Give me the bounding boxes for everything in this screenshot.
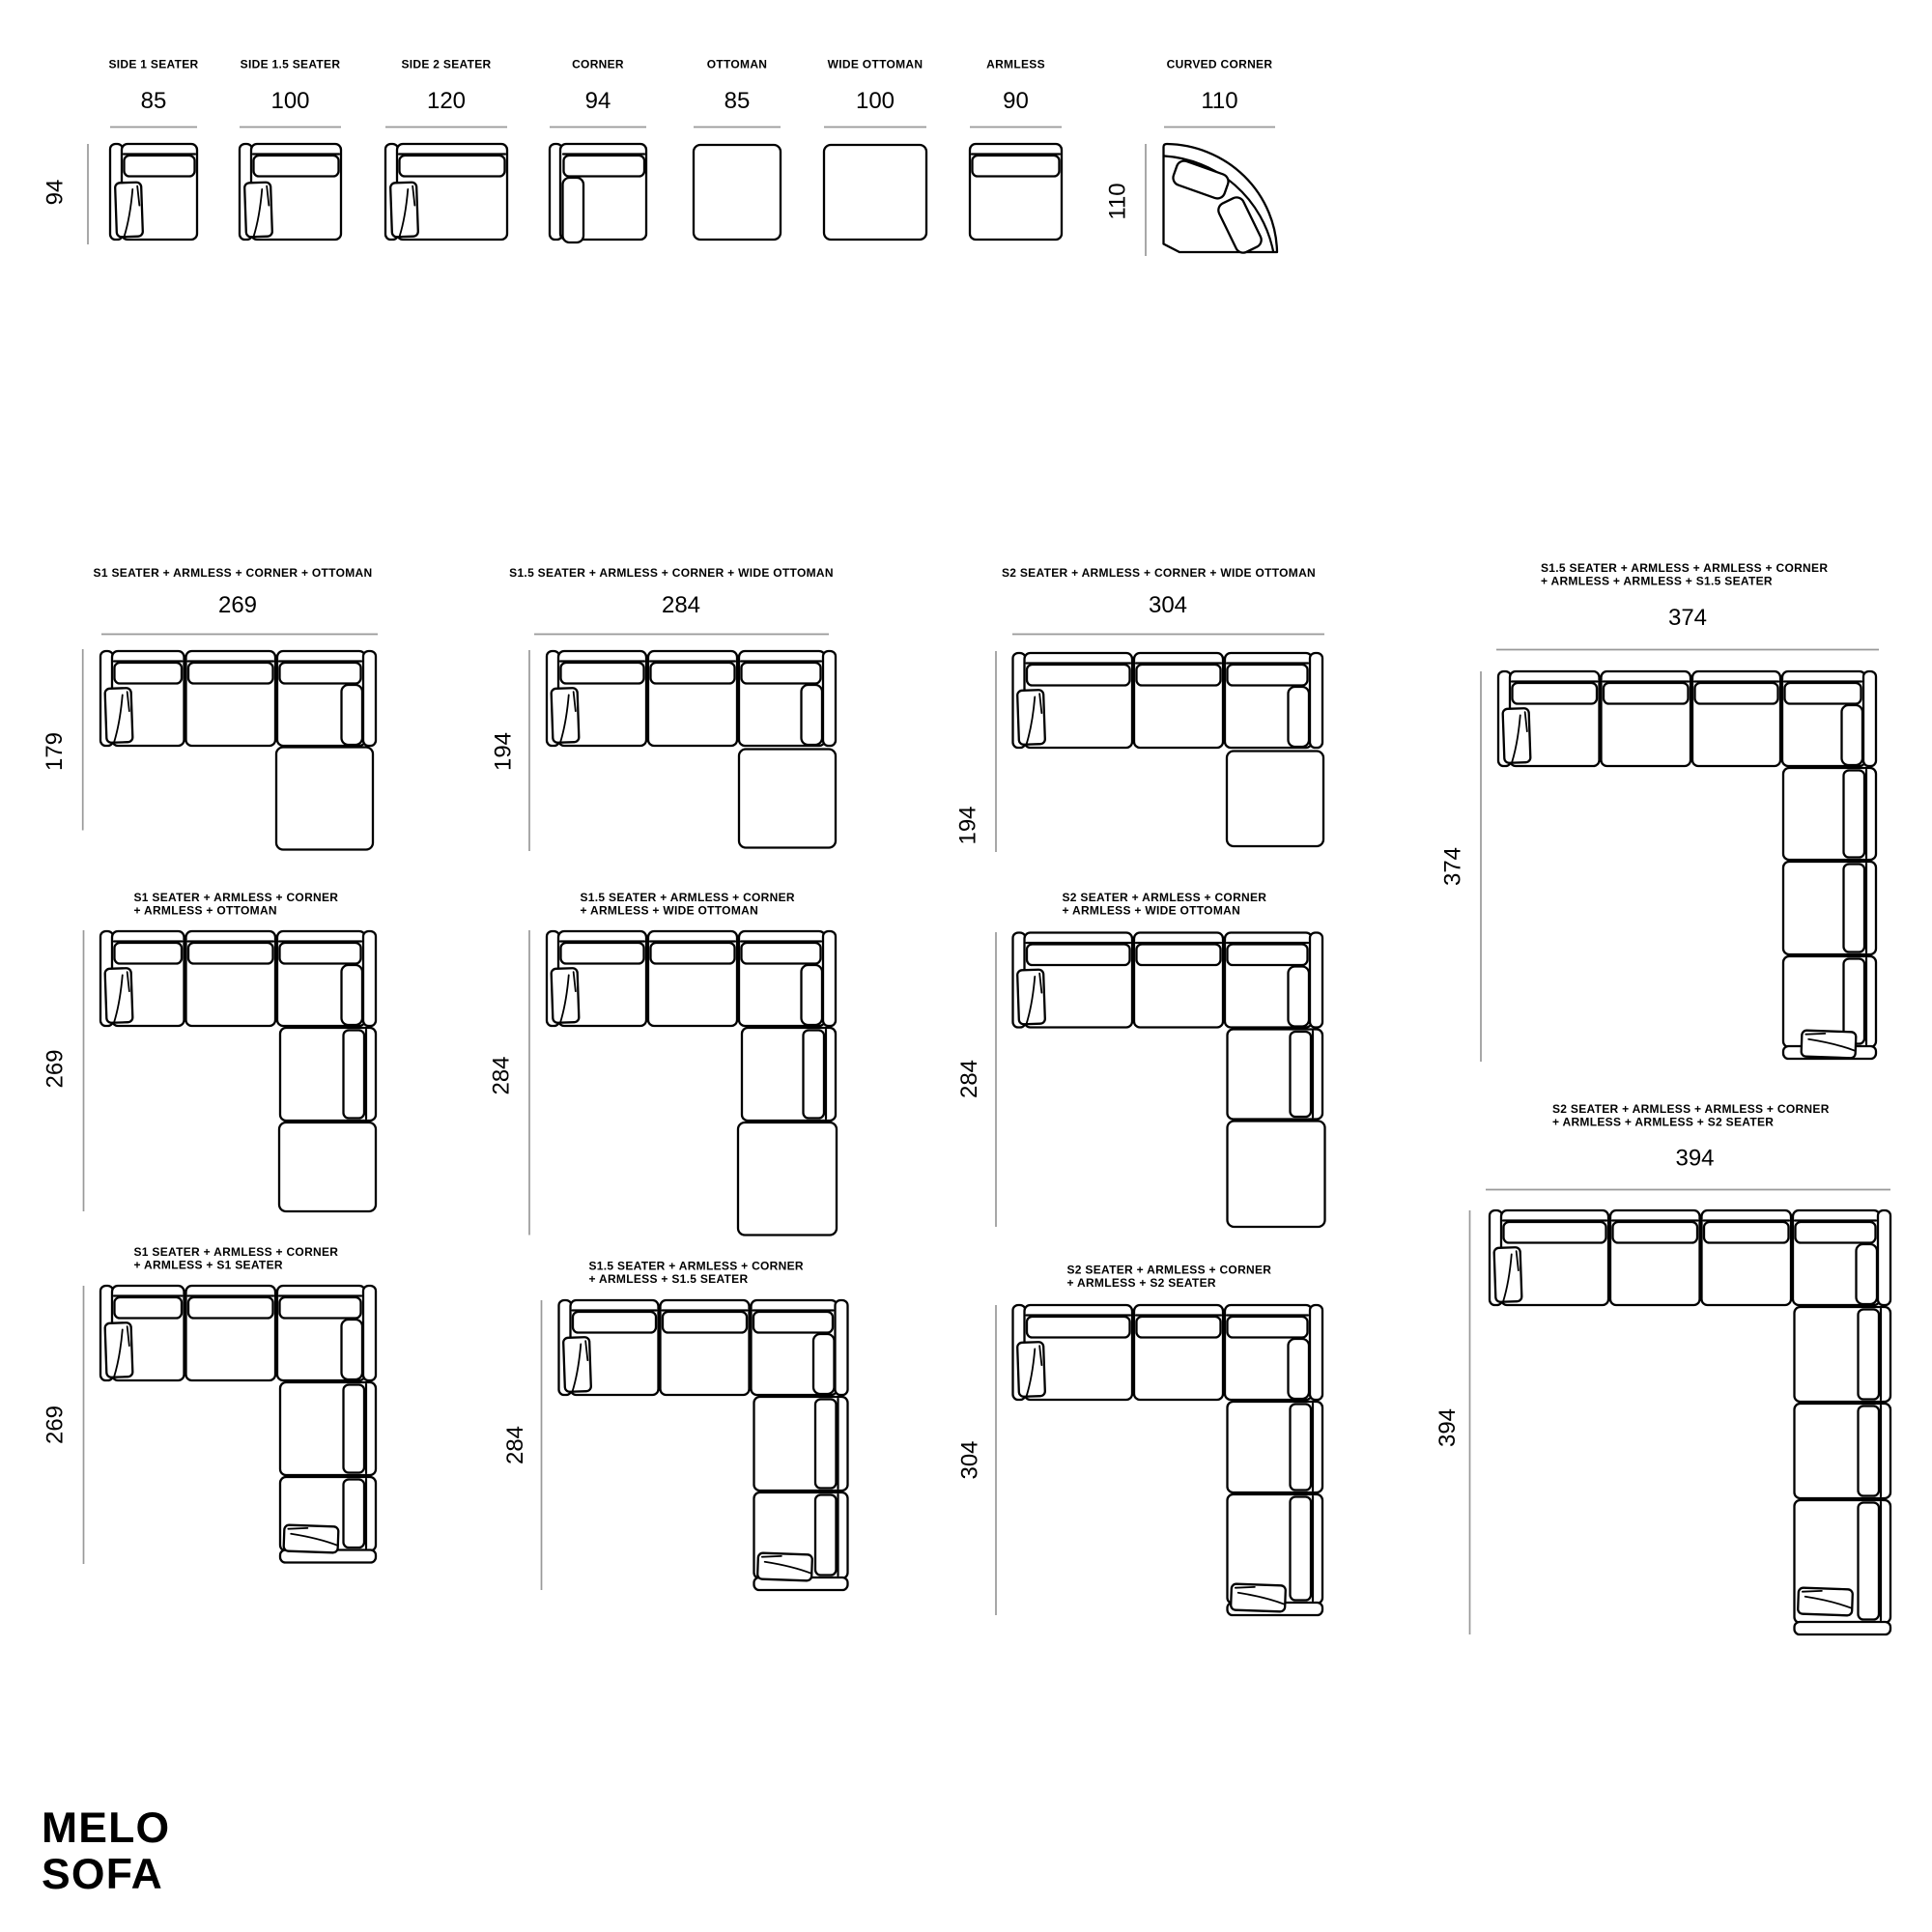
- svg-text:WIDE OTTOMAN: WIDE OTTOMAN: [828, 58, 923, 71]
- svg-text:194: 194: [955, 806, 981, 844]
- svg-text:94: 94: [585, 88, 611, 114]
- svg-text:+ ARMLESS + S1 SEATER: + ARMLESS + S1 SEATER: [134, 1259, 283, 1272]
- svg-text:+ ARMLESS + WIDE OTTOMAN: + ARMLESS + WIDE OTTOMAN: [1063, 904, 1241, 918]
- svg-text:+ ARMLESS + ARMLESS + S2 SEATE: + ARMLESS + ARMLESS + S2 SEATER: [1552, 1116, 1774, 1129]
- svg-text:269: 269: [42, 1049, 68, 1088]
- svg-text:284: 284: [956, 1060, 982, 1098]
- svg-text:394: 394: [1675, 1146, 1714, 1172]
- svg-text:284: 284: [662, 592, 700, 618]
- svg-text:SOFA: SOFA: [42, 1851, 163, 1898]
- svg-text:100: 100: [270, 88, 309, 114]
- svg-text:S2 SEATER + ARMLESS + CORNER: S2 SEATER + ARMLESS + CORNER: [1063, 891, 1267, 904]
- svg-text:SIDE 1.5 SEATER: SIDE 1.5 SEATER: [241, 58, 341, 71]
- svg-text:+ ARMLESS + OTTOMAN: + ARMLESS + OTTOMAN: [134, 904, 277, 918]
- svg-text:CORNER: CORNER: [572, 58, 624, 71]
- svg-text:+ ARMLESS + ARMLESS + S1.5 SEA: + ARMLESS + ARMLESS + S1.5 SEATER: [1541, 575, 1773, 588]
- svg-text:SIDE 2 SEATER: SIDE 2 SEATER: [401, 58, 491, 71]
- svg-text:284: 284: [489, 1056, 515, 1094]
- svg-text:S1 SEATER + ARMLESS + CORNER +: S1 SEATER + ARMLESS + CORNER + OTTOMAN: [94, 566, 373, 580]
- svg-text:CURVED CORNER: CURVED CORNER: [1167, 58, 1273, 71]
- svg-text:110: 110: [1201, 88, 1237, 114]
- svg-text:374: 374: [1668, 605, 1707, 631]
- svg-text:179: 179: [42, 732, 68, 771]
- svg-text:94: 94: [43, 180, 69, 206]
- svg-text:S2 SEATER + ARMLESS + CORNER +: S2 SEATER + ARMLESS + CORNER + WIDE OTTO…: [1002, 566, 1316, 580]
- svg-text:90: 90: [1003, 88, 1029, 114]
- svg-text:ARMLESS: ARMLESS: [986, 58, 1045, 71]
- svg-text:194: 194: [491, 732, 517, 771]
- svg-text:S2 SEATER + ARMLESS + CORNER: S2 SEATER + ARMLESS + CORNER: [1067, 1264, 1272, 1277]
- svg-text:S1.5 SEATER + ARMLESS + CORNER: S1.5 SEATER + ARMLESS + CORNER: [589, 1260, 804, 1273]
- svg-text:S1.5 SEATER + ARMLESS + ARMLES: S1.5 SEATER + ARMLESS + ARMLESS + CORNER: [1541, 561, 1828, 575]
- svg-text:S1 SEATER + ARMLESS + CORNER: S1 SEATER + ARMLESS + CORNER: [134, 1245, 339, 1259]
- svg-text:85: 85: [141, 88, 167, 114]
- svg-text:+ ARMLESS + S1.5 SEATER: + ARMLESS + S1.5 SEATER: [589, 1272, 749, 1286]
- svg-text:S2 SEATER + ARMLESS + ARMLESS: S2 SEATER + ARMLESS + ARMLESS + CORNER: [1552, 1102, 1830, 1116]
- svg-text:+ ARMLESS + WIDE OTTOMAN: + ARMLESS + WIDE OTTOMAN: [581, 904, 759, 918]
- svg-text:S1.5 SEATER + ARMLESS + CORNER: S1.5 SEATER + ARMLESS + CORNER: [581, 891, 795, 904]
- svg-text:269: 269: [218, 592, 257, 618]
- svg-text:85: 85: [724, 88, 751, 114]
- svg-text:374: 374: [1440, 847, 1466, 886]
- svg-text:+ ARMLESS + S2 SEATER: + ARMLESS + S2 SEATER: [1067, 1276, 1216, 1290]
- svg-text:MELO: MELO: [42, 1804, 170, 1852]
- svg-text:110: 110: [1105, 183, 1131, 219]
- svg-text:100: 100: [856, 88, 895, 114]
- svg-text:OTTOMAN: OTTOMAN: [707, 58, 768, 71]
- svg-text:304: 304: [957, 1440, 983, 1479]
- svg-text:SIDE 1 SEATER: SIDE 1 SEATER: [108, 58, 198, 71]
- svg-text:S1 SEATER + ARMLESS + CORNER: S1 SEATER + ARMLESS + CORNER: [134, 891, 339, 904]
- svg-text:269: 269: [42, 1406, 68, 1444]
- svg-text:284: 284: [502, 1426, 528, 1464]
- svg-text:304: 304: [1149, 592, 1187, 618]
- svg-text:120: 120: [427, 88, 466, 114]
- svg-text:394: 394: [1435, 1408, 1461, 1447]
- svg-text:S1.5 SEATER + ARMLESS + CORNER: S1.5 SEATER + ARMLESS + CORNER + WIDE OT…: [509, 566, 834, 580]
